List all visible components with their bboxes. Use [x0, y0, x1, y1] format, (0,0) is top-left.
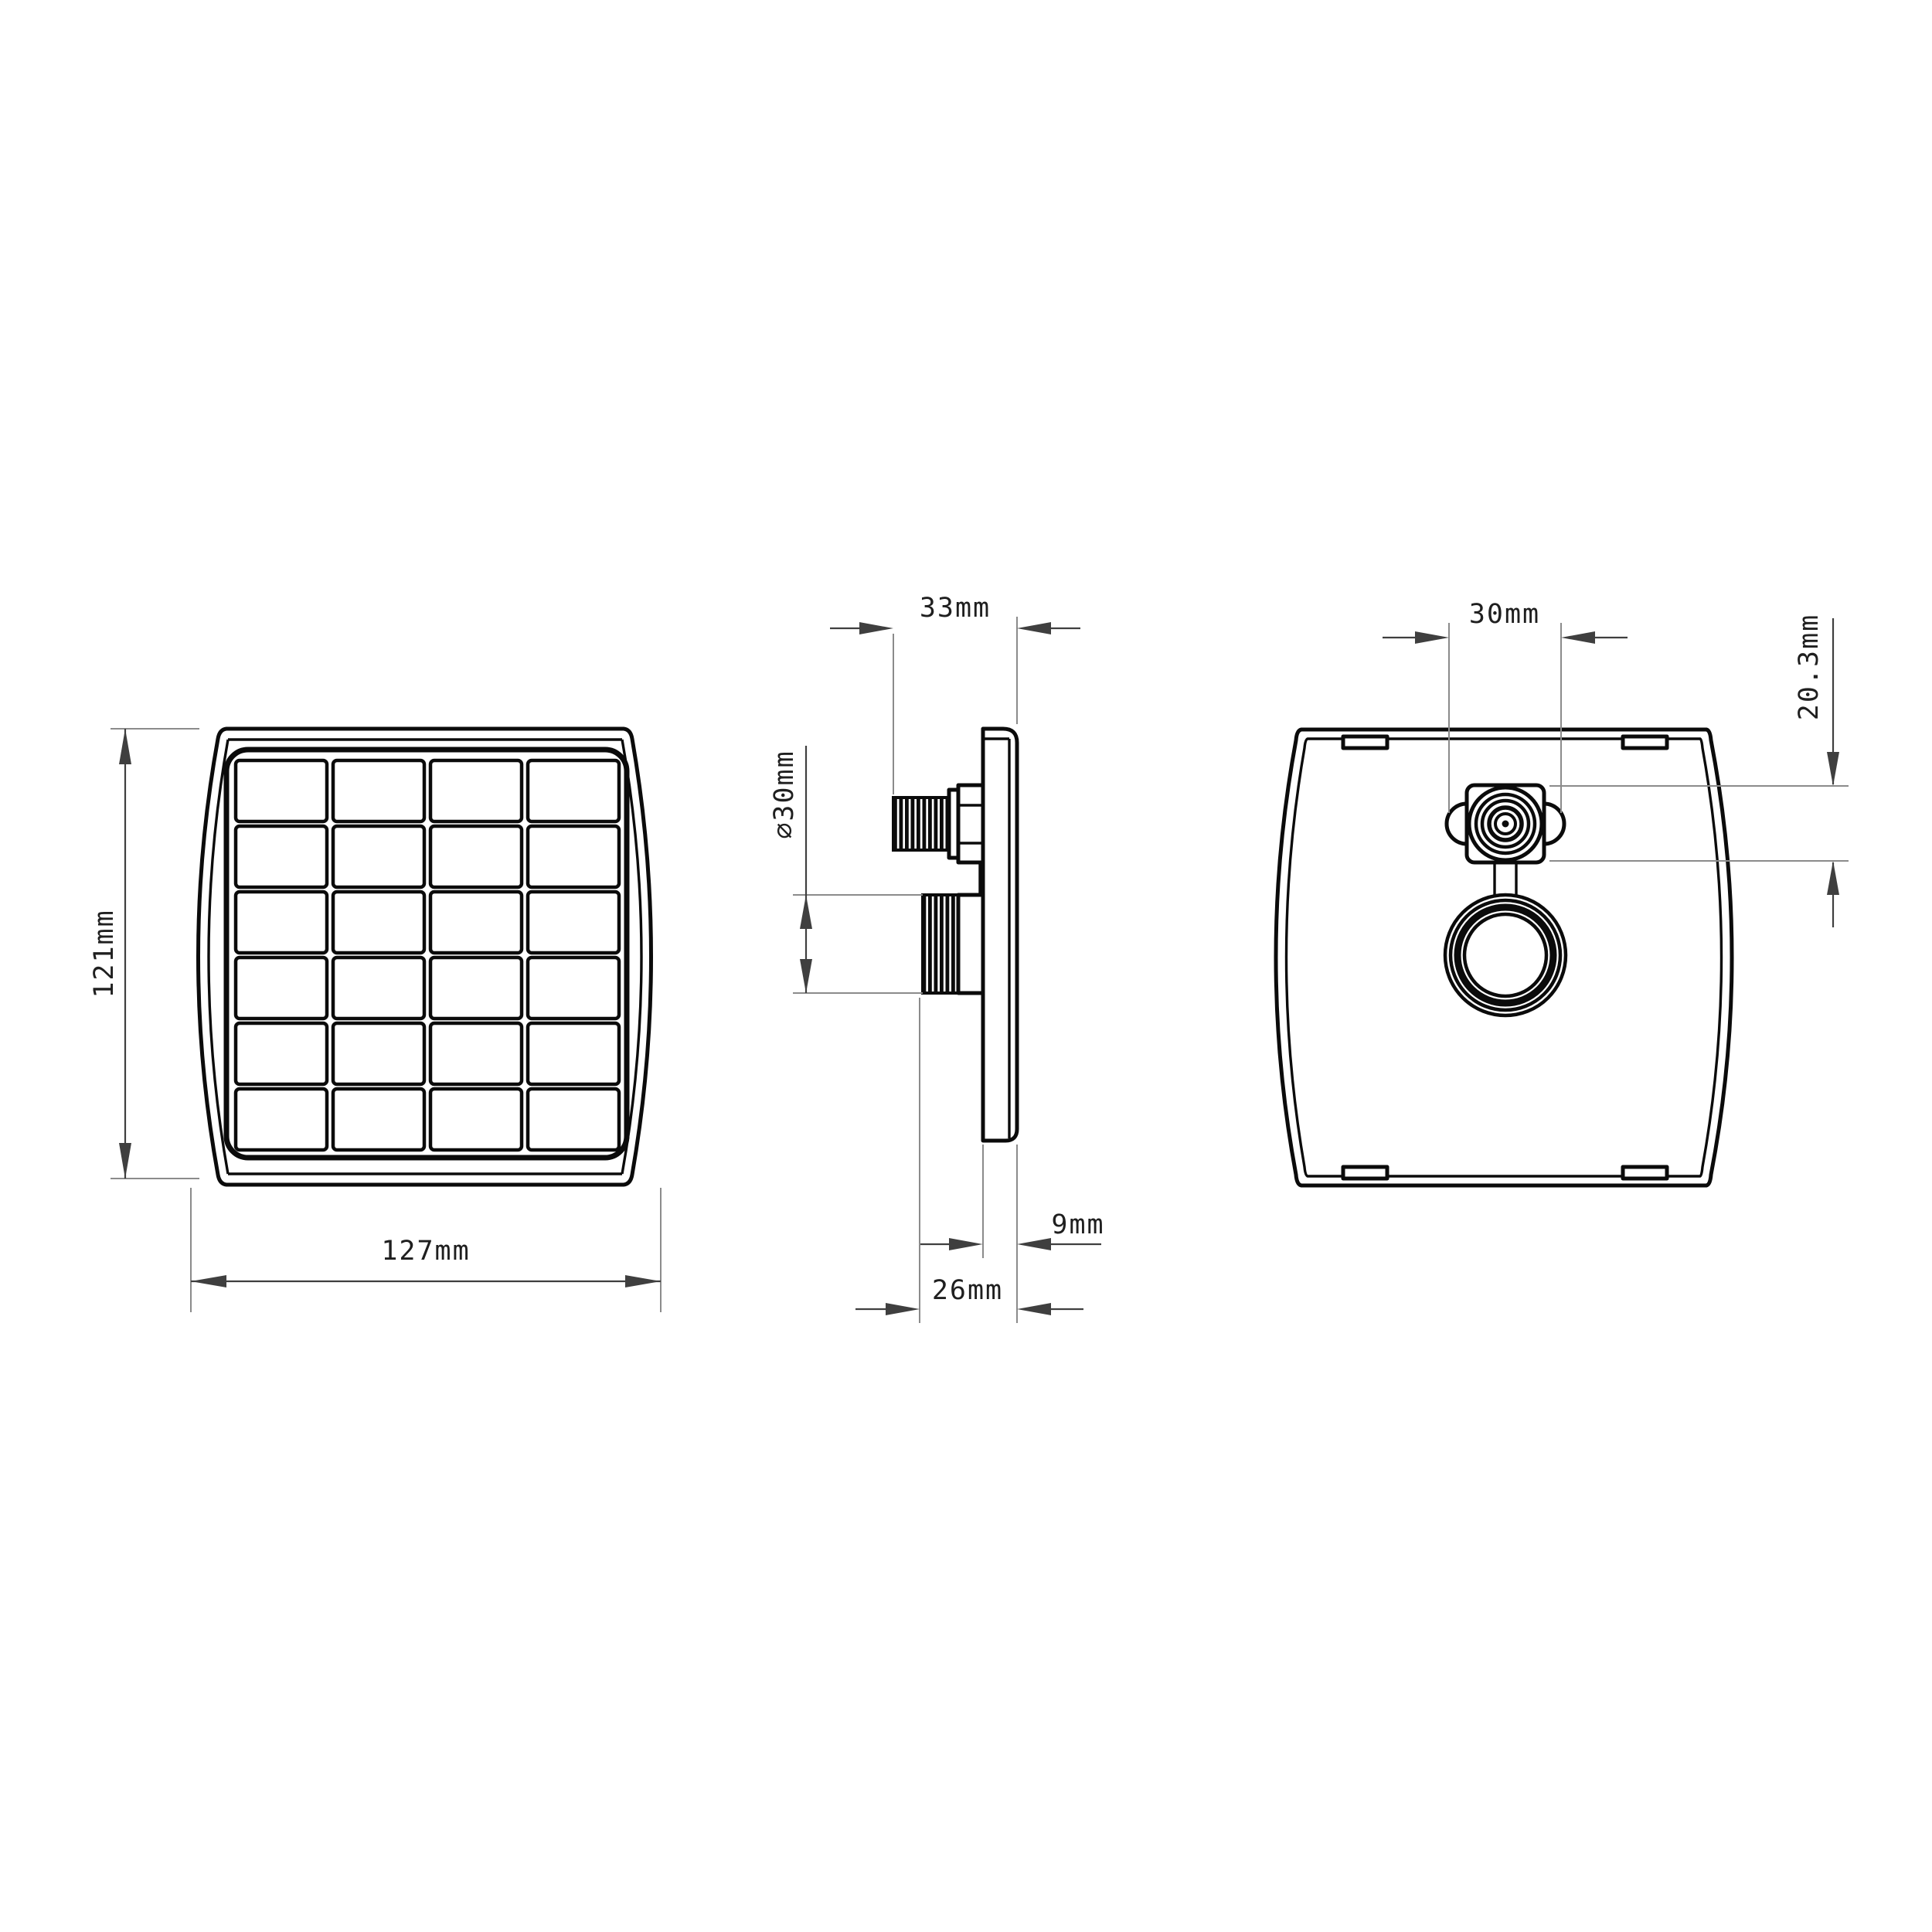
solar-cell: [236, 1089, 327, 1150]
mount-clip-top-right: [1623, 736, 1667, 748]
dim-label-thread-diameter: ⌀30mm: [769, 750, 800, 838]
dim-side-depth: 33mm: [830, 593, 1080, 794]
dim-front-width: 127mm: [191, 1188, 661, 1312]
dim-label-front-height: 121mm: [89, 909, 120, 998]
solar-cell: [333, 892, 424, 953]
side-thread-collar: [923, 895, 958, 993]
back-view: [1276, 730, 1732, 1185]
technical-drawing-canvas: 121mm 127mm 33mm ⌀30mm: [0, 0, 1932, 1932]
side-view: [893, 729, 1017, 1141]
solar-cell: [430, 760, 522, 821]
front-view: [199, 729, 651, 1185]
solar-cell: [528, 957, 619, 1019]
side-thread-stub: [893, 798, 949, 850]
solar-cell: [528, 892, 619, 953]
solar-cell: [236, 826, 327, 887]
side-panel-plate: [983, 729, 1017, 1141]
dim-label-side-depth: 33mm: [920, 593, 991, 624]
solar-cell: [333, 957, 424, 1019]
solar-cell: [430, 826, 522, 887]
solar-cell: [236, 1023, 327, 1084]
mount-clip-bottom-right: [1623, 1167, 1667, 1179]
solar-cell: [528, 760, 619, 821]
solar-cell: [333, 826, 424, 887]
dim-label-front-width: 127mm: [381, 1236, 470, 1267]
solar-cell: [236, 957, 327, 1019]
solar-cell: [528, 826, 619, 887]
solar-cell: [430, 957, 522, 1019]
solar-cell: [333, 760, 424, 821]
solar-cell: [236, 760, 327, 821]
mount-clip-top-left: [1343, 736, 1387, 748]
solar-cell: [236, 892, 327, 953]
dim-label-connector-width: 30mm: [1469, 599, 1540, 630]
solar-cell: [333, 1089, 424, 1150]
solar-cell: [430, 1023, 522, 1084]
dim-body-depth: 26mm: [855, 998, 1083, 1323]
dim-front-height: 121mm: [89, 729, 199, 1179]
dim-label-connector-height: 20.3mm: [1794, 614, 1825, 720]
dim-label-body-depth: 26mm: [932, 1275, 1003, 1306]
solar-cell: [333, 1023, 424, 1084]
solar-cell: [528, 1023, 619, 1084]
side-stub-hex-nut: [958, 785, 983, 862]
solar-cell: [430, 1089, 522, 1150]
solar-cell: [430, 892, 522, 953]
dim-thread-diameter: ⌀30mm: [769, 746, 923, 993]
mount-clip-bottom-left: [1343, 1167, 1387, 1179]
side-collar-smooth: [958, 895, 983, 993]
solar-cell: [528, 1089, 619, 1150]
dim-label-plate-thickness: 9mm: [1051, 1209, 1104, 1240]
connector-center-pin: [1502, 821, 1509, 828]
